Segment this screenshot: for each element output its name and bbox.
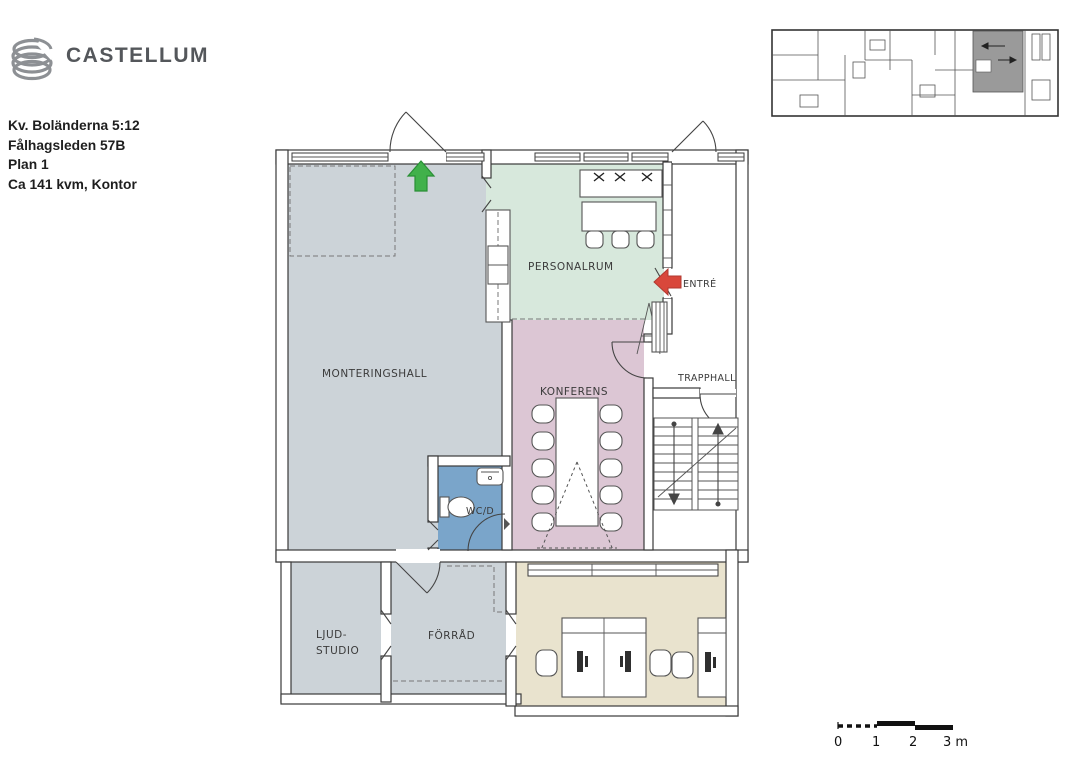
label-ljudstudio-1: LJUD- xyxy=(316,629,347,641)
label-forrad: FÖRRÅD xyxy=(428,629,475,642)
stairs xyxy=(654,418,738,510)
kitchenette xyxy=(486,210,510,322)
label-monteringshall: MONTERINGSHALL xyxy=(322,368,427,380)
scale-bar: 0 1 2 3 m xyxy=(834,721,968,750)
label-wc: WC/D xyxy=(466,506,494,517)
overview-plan xyxy=(772,30,1058,116)
scale-tick-1: 1 xyxy=(872,735,880,750)
wc-sink xyxy=(477,468,503,485)
office-chair xyxy=(672,652,693,678)
office-chair xyxy=(536,650,557,676)
room-forrad xyxy=(391,562,506,694)
label-ljudstudio-2: STUDIO xyxy=(316,645,359,657)
scale-tick-2: 2 xyxy=(909,735,917,750)
floor-plan: MONTERINGSHALL PERSONALRUM KONFERENS TRA… xyxy=(0,0,1067,780)
office-chair xyxy=(650,650,671,676)
label-trapphall: TRAPPHALL xyxy=(677,373,736,384)
lunch-table xyxy=(582,202,656,248)
label-personalrum: PERSONALRUM xyxy=(528,261,614,273)
label-entre: ENTRÉ xyxy=(683,278,717,290)
scale-tick-0: 0 xyxy=(834,735,842,750)
kitchen-counter xyxy=(580,170,662,197)
label-konferens: KONFERENS xyxy=(540,386,608,398)
scale-tick-3: 3 m xyxy=(943,735,968,750)
room-ljudstudio xyxy=(291,562,381,694)
